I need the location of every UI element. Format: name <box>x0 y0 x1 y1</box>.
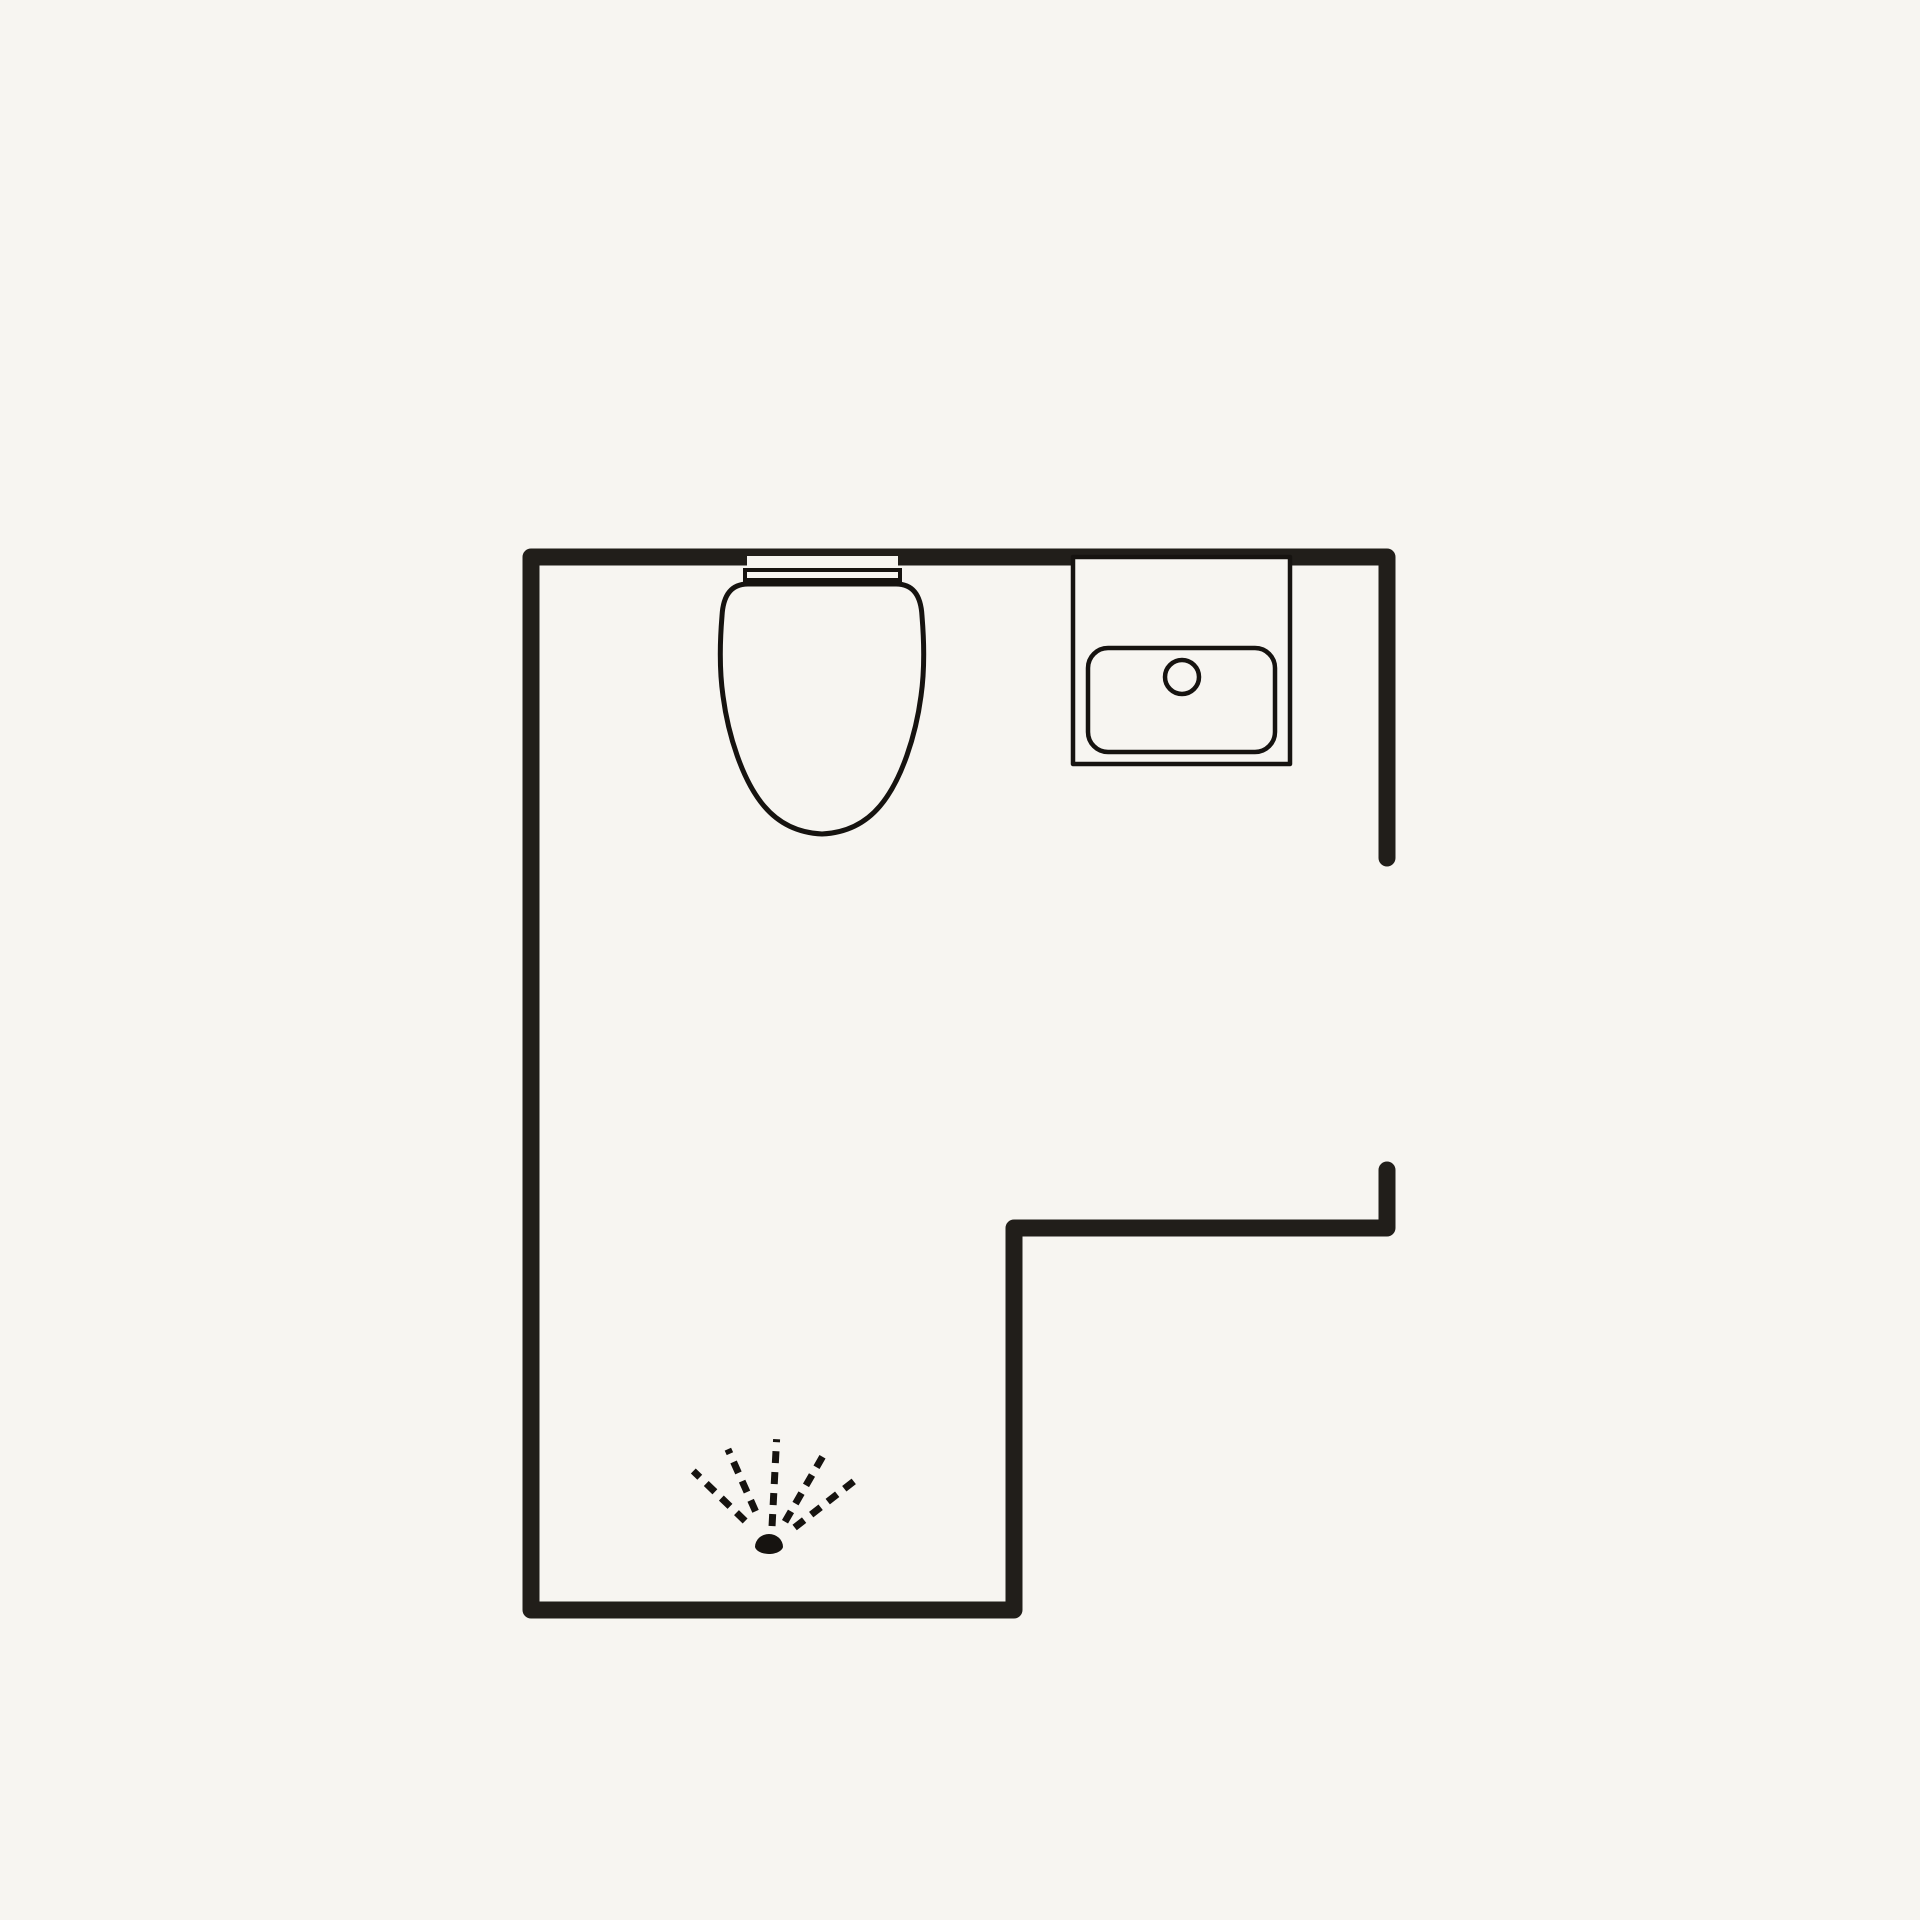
sink-vanity <box>1073 557 1290 764</box>
shower-spray-ray <box>728 1449 756 1511</box>
shower-spray-ray <box>772 1439 777 1526</box>
toilet <box>720 556 924 834</box>
floor-plan-canvas <box>0 0 1920 1920</box>
shower-spray <box>693 1439 857 1554</box>
bathroom-floor-plan <box>0 0 1920 1920</box>
shower-spray-ray <box>693 1471 745 1521</box>
sink-drain-icon <box>1165 660 1199 694</box>
shower-spray-ray <box>795 1478 858 1527</box>
toilet-tank <box>745 570 900 580</box>
shower-nozzle-icon <box>755 1534 783 1554</box>
toilet-wall-notch <box>747 556 898 568</box>
toilet-bowl <box>720 584 924 834</box>
